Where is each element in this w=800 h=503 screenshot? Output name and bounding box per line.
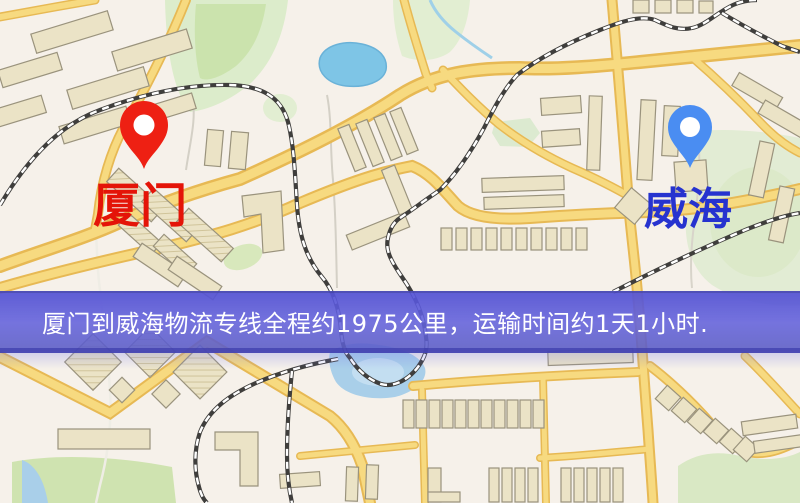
route-info-banner: 厦门到威海物流专线全程约1975公里，运输时间约1天1小时. (0, 291, 800, 353)
map-background: 厦门 威海 (0, 0, 800, 503)
destination-pin-hole (680, 117, 700, 137)
destination-label: 威海 (644, 184, 732, 235)
origin-label: 厦门 (93, 179, 187, 234)
lake (319, 43, 386, 87)
route-info-text: 厦门到威海物流专线全程约1975公里，运输时间约1天1小时. (0, 306, 708, 336)
origin-pin-hole (134, 115, 155, 136)
map-screenshot: 厦门 威海 厦门到威海物流专线全程约1975公里，运输时间约1天1小时. (0, 0, 800, 503)
